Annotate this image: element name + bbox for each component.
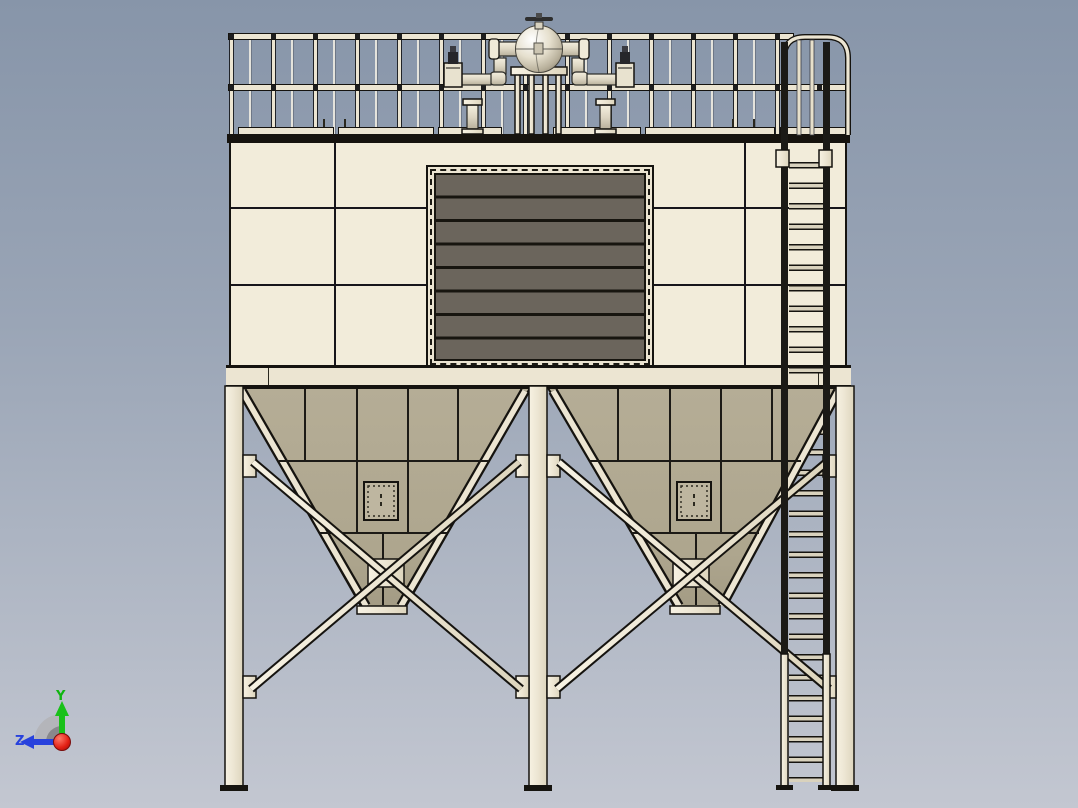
leg-base-plate — [220, 785, 248, 791]
ladder-bracket — [819, 150, 832, 167]
tank-stand-leg — [515, 74, 520, 134]
pipe-flange — [579, 39, 589, 59]
left-piping — [444, 39, 520, 87]
x-axis-origin-ball — [54, 734, 71, 751]
tank-stand-leg — [543, 74, 548, 134]
ladder-bracket — [776, 150, 789, 167]
axis-triad: Y Z — [15, 689, 71, 751]
tank-stand-leg — [556, 74, 561, 134]
y-axis-label: Y — [55, 689, 66, 704]
leg-base-plate — [831, 785, 859, 791]
hopper-outlet-flange — [670, 606, 720, 614]
cage-vertical — [810, 40, 814, 135]
roof-pipe-stub — [595, 99, 616, 134]
tank-stand-leg — [529, 74, 534, 134]
support-leg — [225, 386, 243, 786]
support-leg — [836, 386, 854, 786]
hopper-access-door[interactable] — [677, 482, 711, 520]
hopper-access-door[interactable] — [364, 482, 398, 520]
ladder-rail-right — [823, 42, 830, 654]
air-tank-assembly — [444, 13, 634, 134]
pulse-valve[interactable] — [444, 46, 462, 87]
cad-viewport[interactable]: Y Z — [0, 0, 1078, 808]
support-leg — [529, 386, 547, 786]
cage-vertical — [797, 40, 801, 135]
z-axis-label: Z — [15, 734, 24, 749]
right-piping — [558, 39, 634, 87]
roof-pins — [323, 119, 755, 127]
ladder-cage-hoop — [784, 37, 848, 135]
hopper-outlet-flange — [357, 606, 407, 614]
leg-base-plate — [524, 785, 552, 791]
tank-top-valve[interactable] — [525, 13, 553, 29]
pipe-flange — [489, 39, 499, 59]
roof-pipe-stub — [462, 99, 483, 134]
tank-lug — [534, 43, 543, 54]
model-overlay: Y Z — [0, 0, 1078, 808]
pulse-valve[interactable] — [616, 46, 634, 87]
ladder-rail-left — [781, 42, 788, 654]
